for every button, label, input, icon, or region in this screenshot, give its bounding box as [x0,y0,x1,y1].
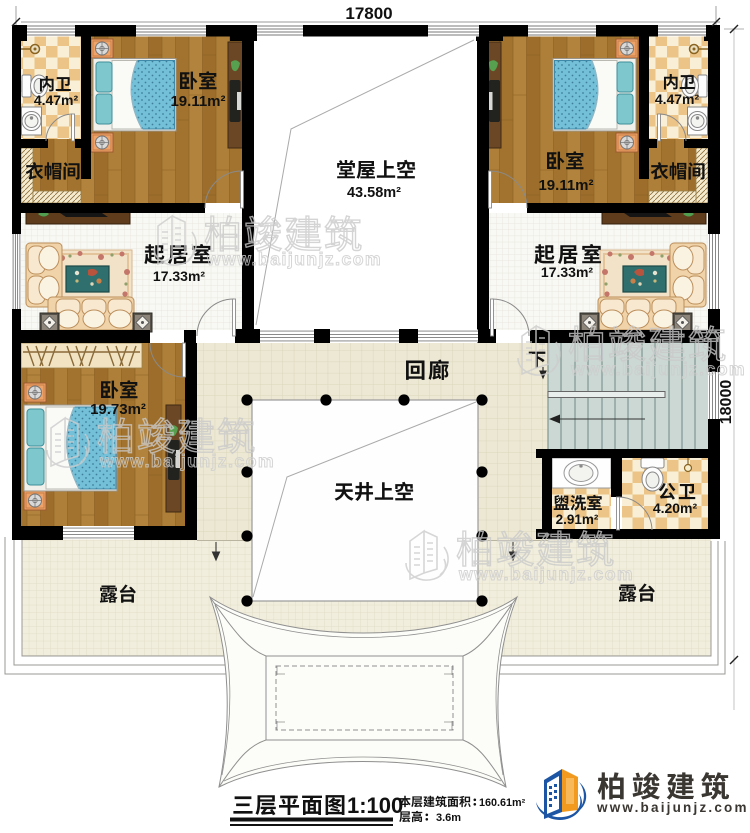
svg-text:www.baijunjz.com: www.baijunjz.com [458,564,634,584]
svg-text:19.11m²: 19.11m² [538,177,593,194]
svg-text:www.baijunjz.com: www.baijunjz.com [570,359,746,379]
svg-text:43.58m²: 43.58m² [347,185,401,201]
svg-text:4.47m²: 4.47m² [655,91,700,107]
svg-text:1:100: 1:100 [347,793,403,818]
svg-text:17800: 17800 [345,4,392,23]
svg-text:www.baijunjz.com: www.baijunjz.com [99,451,275,471]
svg-text:2.91m²: 2.91m² [556,512,599,527]
svg-text:17.33m²: 17.33m² [153,268,205,284]
svg-text:18000: 18000 [718,380,735,425]
svg-text:www.baijunjz.com: www.baijunjz.com [206,249,382,269]
svg-text:17.33m²: 17.33m² [541,264,593,280]
svg-text:www.baijunjz.com: www.baijunjz.com [596,800,749,815]
svg-text:19.11m²: 19.11m² [170,93,225,110]
svg-text:19.73m²: 19.73m² [90,401,146,418]
svg-text:3.6m: 3.6m [436,812,461,824]
svg-text:160.61m²: 160.61m² [479,797,526,809]
svg-text:4.20m²: 4.20m² [653,500,698,516]
svg-text:4.47m²: 4.47m² [34,92,79,108]
